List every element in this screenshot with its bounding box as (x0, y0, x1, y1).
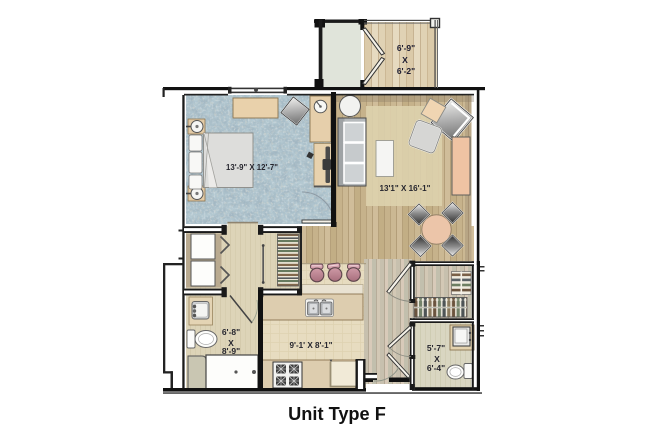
svg-text:8'-9": 8'-9" (222, 346, 240, 356)
svg-text:X: X (402, 55, 408, 65)
svg-text:6'-4": 6'-4" (427, 363, 445, 373)
svg-text:6'-9": 6'-9" (397, 43, 415, 53)
svg-text:6'-8": 6'-8" (222, 327, 240, 337)
svg-text:6'-2": 6'-2" (397, 66, 415, 76)
svg-text:13'-9" X 12'-7": 13'-9" X 12'-7" (226, 162, 278, 172)
svg-text:9'-1' X 8'-1": 9'-1' X 8'-1" (290, 340, 333, 350)
svg-text:13'1" X 16'-1": 13'1" X 16'-1" (380, 183, 431, 193)
svg-text:5'-7": 5'-7" (427, 343, 445, 353)
svg-text:Unit Type F: Unit Type F (288, 404, 386, 424)
